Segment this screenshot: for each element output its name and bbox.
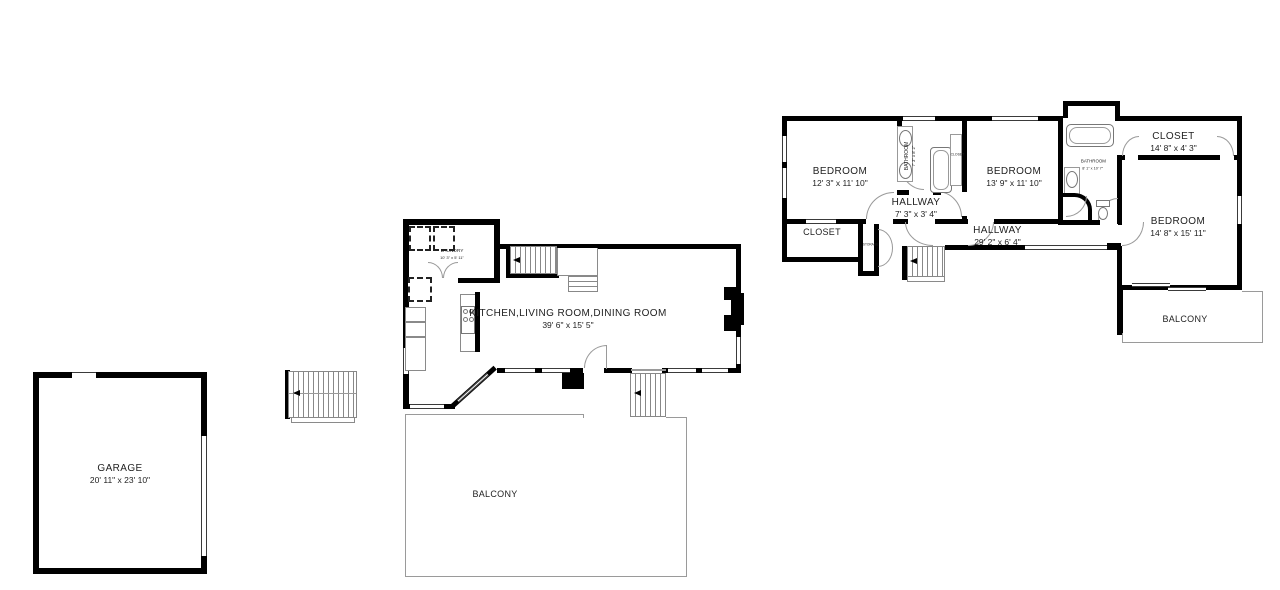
- balcony-edge: [1122, 333, 1123, 343]
- wall: [893, 219, 902, 224]
- window: [992, 116, 1038, 121]
- wall: [782, 116, 967, 121]
- stair-landing: [557, 248, 598, 276]
- garage-label: GARAGE 20' 11" x 23' 10": [50, 463, 190, 485]
- balcony-edge: [405, 414, 406, 577]
- wall: [494, 219, 500, 283]
- entry-door: [584, 345, 607, 368]
- hallway2-dims: 29' 2" x 6' 4": [940, 237, 1055, 247]
- closet-bl-name: CLOSET: [787, 227, 857, 237]
- wall: [1138, 155, 1220, 160]
- wall: [604, 368, 632, 373]
- hallway1-dims: 7' 3" x 3' 4": [880, 209, 952, 219]
- wall: [1063, 101, 1068, 118]
- closet-nook-label: CLOSET: [942, 153, 968, 164]
- window: [736, 337, 741, 364]
- closet-top-name: CLOSET: [1126, 131, 1221, 142]
- upper-balcony-label: BALCONY: [1145, 314, 1225, 324]
- balcony-edge: [1242, 291, 1262, 292]
- bay-wall: [450, 366, 497, 409]
- refrigerator: [408, 277, 432, 302]
- door: [878, 248, 893, 267]
- stair-arrow: [910, 258, 917, 264]
- door-leaf: [606, 345, 607, 369]
- door: [905, 222, 933, 246]
- sliding-door: [1168, 287, 1206, 291]
- main-balcony-name: BALCONY: [455, 489, 535, 499]
- wall: [1063, 101, 1120, 106]
- bedroom3-name: BEDROOM: [1130, 216, 1226, 227]
- wall: [403, 219, 500, 225]
- window: [457, 373, 489, 402]
- wall: [897, 190, 909, 195]
- door: [878, 229, 893, 248]
- wall: [1115, 116, 1242, 121]
- garage-name: GARAGE: [50, 463, 190, 474]
- window: [702, 368, 728, 373]
- window: [782, 136, 787, 162]
- bedroom2-name: BEDROOM: [966, 166, 1062, 177]
- bathroom1-label: BATHROOM 7' 3" x 8' 2": [904, 126, 924, 186]
- storage-label: STORAGE: [854, 243, 880, 254]
- hallway2-label: HALLWAY 29' 2" x 6' 4": [940, 225, 1055, 247]
- floor-plan: GARAGE 20' 11" x 23' 10": [0, 0, 1280, 590]
- hallway1-name: HALLWAY: [880, 197, 952, 208]
- stair-landing-edge: [907, 277, 945, 282]
- bathroom2-dims: 8' 1" x 10' 7": [1082, 167, 1099, 171]
- main-balcony-label: BALCONY: [455, 489, 535, 499]
- wall: [1107, 243, 1121, 250]
- appliance: [405, 322, 426, 337]
- balcony-edge: [1122, 342, 1263, 343]
- stair-lower-run: [568, 276, 598, 292]
- great-room-dims: 39' 6" x 15' 5": [438, 320, 698, 330]
- bathroom2-name: BATHROOM: [1081, 159, 1101, 164]
- stair-arrow: [293, 390, 300, 396]
- balcony-wall: [1117, 290, 1123, 335]
- window: [1237, 196, 1242, 224]
- toilet-bowl: [1098, 207, 1108, 220]
- stair-arrow: [513, 257, 520, 263]
- bathroom1-name: BATHROOM: [904, 141, 910, 171]
- window: [782, 168, 787, 198]
- balcony-edge: [686, 417, 687, 577]
- wall: [994, 219, 1063, 224]
- window: [903, 116, 935, 121]
- balcony-edge: [405, 576, 687, 577]
- great-room-label: KITCHEN,LIVING ROOM,DINING ROOM 39' 6" x…: [438, 308, 698, 330]
- garage-window: [201, 436, 207, 556]
- bedroom3-dims: 14' 8" x 15' 11": [1130, 228, 1226, 238]
- bedroom1-label: BEDROOM 12' 3" x 11' 10": [795, 166, 885, 188]
- laundry-label: LAUNDRY 10' 3" x 5' 11": [422, 248, 482, 270]
- entry-step: [562, 373, 584, 389]
- appliance: [405, 307, 426, 322]
- bathroom2-label: BATHROOM 8' 1" x 10' 7": [1068, 159, 1114, 181]
- window: [410, 404, 444, 409]
- toilet-tank: [1096, 200, 1110, 207]
- fireplace-bump: [741, 293, 744, 325]
- stair-arrow: [634, 390, 641, 396]
- bathtub-inner: [1069, 127, 1111, 144]
- balcony-edge: [405, 414, 584, 415]
- laundry-dims: 10' 3" x 5' 11": [440, 256, 464, 260]
- great-room-name: KITCHEN,LIVING ROOM,DINING ROOM: [438, 308, 698, 319]
- balcony-edge: [666, 417, 687, 418]
- bedroom3-label: BEDROOM 14' 8" x 15' 11": [1130, 216, 1226, 238]
- laundry-name: LAUNDRY: [438, 248, 467, 253]
- garage-dims: 20' 11" x 23' 10": [50, 475, 190, 485]
- wall: [506, 274, 559, 278]
- bedroom2-label: BEDROOM 13' 9" x 11' 10": [966, 166, 1062, 188]
- wall: [935, 219, 962, 224]
- bedroom1-dims: 12' 3" x 11' 10": [795, 178, 885, 188]
- stair-landing-edge: [291, 418, 355, 423]
- hallway1-label: HALLWAY 7' 3" x 3' 4": [880, 197, 952, 219]
- window: [668, 368, 696, 373]
- kitchen-counter: [405, 337, 426, 371]
- upper-balcony-name: BALCONY: [1145, 314, 1225, 324]
- wall: [1234, 155, 1242, 160]
- closet-top-label: CLOSET 14' 8" x 4' 3": [1126, 131, 1221, 153]
- hallway2-name: HALLWAY: [940, 225, 1055, 236]
- bedroom1-name: BEDROOM: [795, 166, 885, 177]
- closet-bl-label: CLOSET: [787, 227, 857, 237]
- firebox: [724, 300, 731, 315]
- balcony-edge: [1262, 291, 1263, 343]
- closet-top-dims: 14' 8" x 4' 3": [1126, 143, 1221, 153]
- window: [806, 219, 836, 224]
- wall: [1117, 246, 1122, 290]
- garage-door-opening: [72, 372, 96, 378]
- wall: [782, 257, 863, 262]
- balcony-edge: [583, 414, 584, 418]
- stair-threshold: [631, 369, 666, 371]
- wall: [458, 278, 500, 283]
- window: [505, 368, 535, 373]
- sliding-door: [1132, 283, 1170, 287]
- bathroom1-dims: 7' 3" x 8' 2": [912, 143, 917, 168]
- closet-nook-name: CLOSET: [951, 153, 960, 157]
- storage-name: STORAGE: [863, 243, 871, 247]
- bedroom2-dims: 13' 9" x 11' 10": [966, 178, 1062, 188]
